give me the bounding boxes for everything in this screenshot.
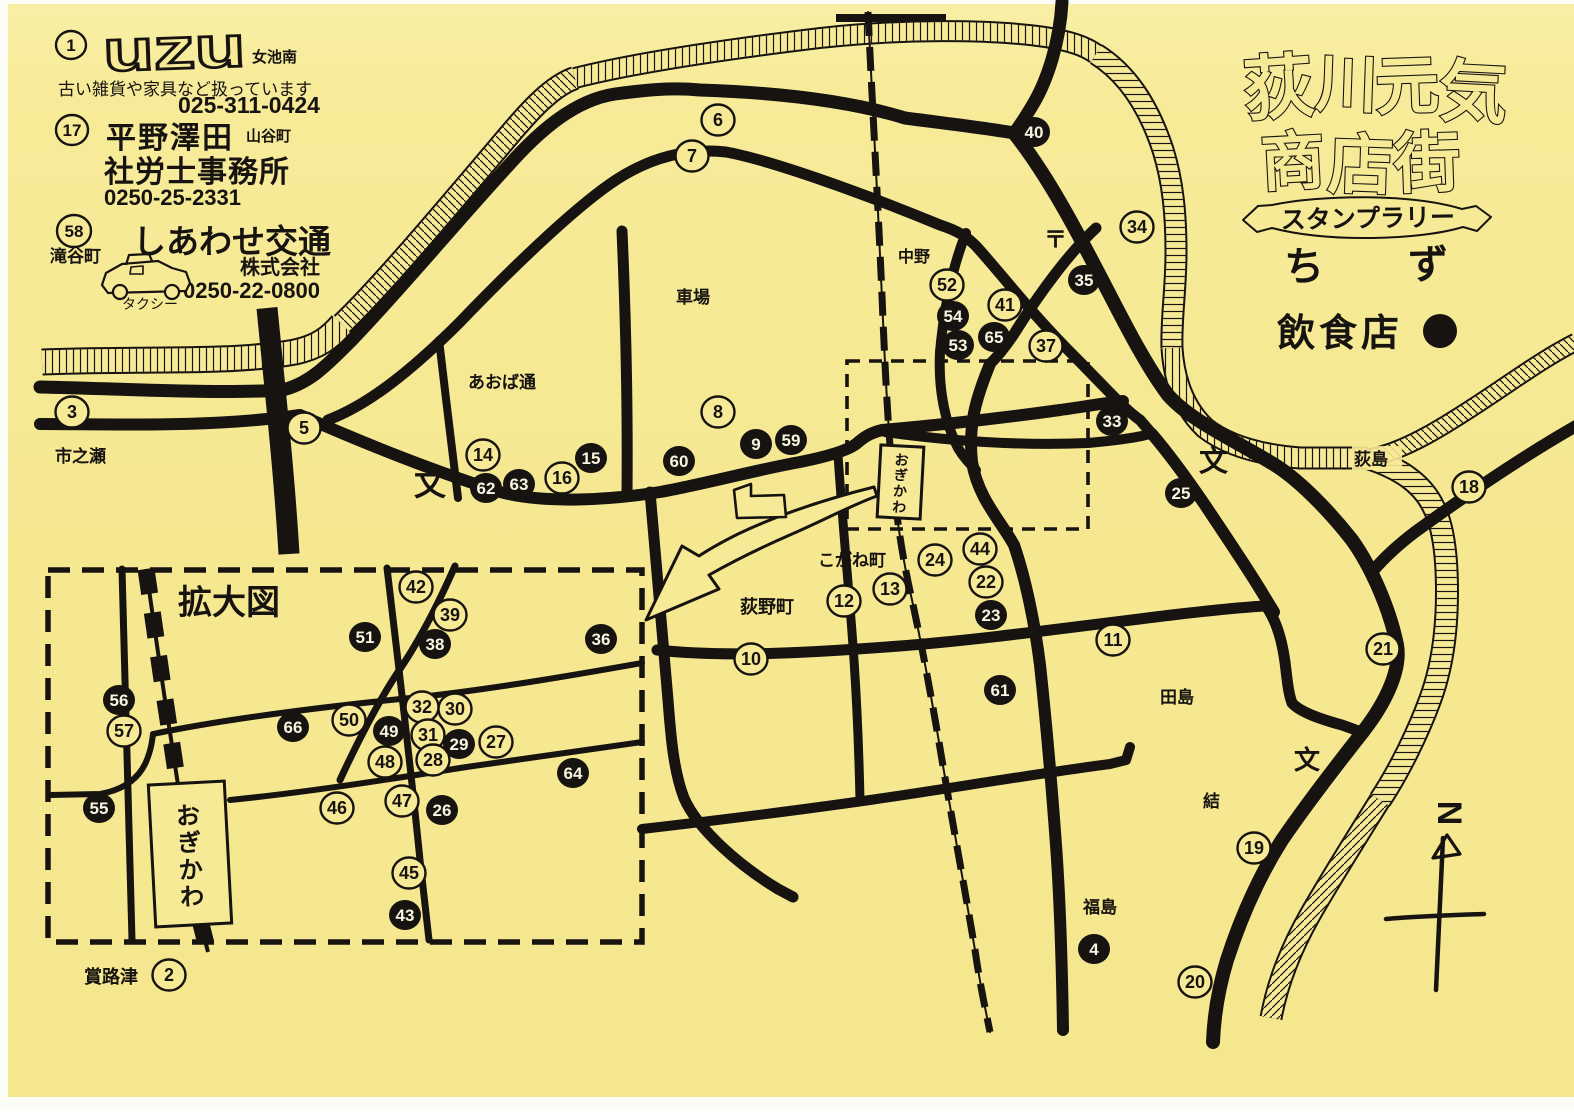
svg-text:12: 12	[834, 591, 854, 611]
svg-text:35: 35	[1075, 271, 1094, 290]
svg-text:5: 5	[299, 418, 309, 438]
svg-text:52: 52	[937, 275, 957, 295]
svg-text:55: 55	[90, 799, 109, 818]
svg-text:uzu: uzu	[102, 14, 246, 84]
svg-text:商: 商	[1259, 124, 1327, 199]
svg-text:39: 39	[440, 605, 460, 625]
svg-text:14: 14	[473, 445, 493, 465]
svg-text:か: か	[178, 856, 203, 884]
svg-text:42: 42	[406, 577, 426, 597]
svg-text:N: N	[1430, 801, 1468, 826]
svg-text:58: 58	[65, 222, 84, 241]
svg-text:文: 文	[1199, 444, 1229, 478]
svg-text:川: 川	[1315, 50, 1379, 121]
svg-text:17: 17	[63, 121, 82, 140]
svg-text:拡大図: 拡大図	[178, 584, 280, 622]
svg-text:ち: ち	[1284, 245, 1324, 289]
svg-text:気: 気	[1437, 53, 1509, 132]
svg-text:57: 57	[114, 721, 134, 741]
svg-text:飲食店: 飲食店	[1277, 313, 1403, 355]
svg-text:お: お	[175, 802, 200, 830]
svg-text:23: 23	[982, 606, 1001, 625]
svg-text:30: 30	[445, 699, 465, 719]
svg-text:中野: 中野	[898, 247, 930, 266]
svg-text:3: 3	[67, 402, 77, 422]
svg-text:こがね町: こがね町	[818, 550, 886, 570]
svg-text:62: 62	[477, 479, 496, 498]
svg-text:田島: 田島	[1160, 687, 1194, 707]
svg-text:あおば通: あおば通	[468, 373, 536, 392]
svg-text:結: 結	[1203, 791, 1220, 811]
svg-text:0250-25-2331: 0250-25-2331	[104, 185, 241, 210]
svg-text:2: 2	[164, 965, 174, 985]
svg-text:株式会社: 株式会社	[240, 255, 320, 279]
svg-text:元: 元	[1374, 49, 1440, 123]
svg-text:山谷町: 山谷町	[246, 128, 291, 145]
svg-text:荻島: 荻島	[1354, 449, 1388, 469]
svg-text:4: 4	[1089, 940, 1099, 959]
svg-text:19: 19	[1244, 838, 1264, 858]
svg-text:33: 33	[1103, 412, 1122, 431]
svg-text:文: 文	[1294, 745, 1321, 775]
svg-text:63: 63	[510, 475, 529, 494]
svg-text:26: 26	[433, 801, 452, 820]
svg-text:しあわせ交通: しあわせ交通	[133, 223, 331, 260]
svg-text:29: 29	[450, 735, 469, 754]
svg-text:福島: 福島	[1082, 897, 1117, 917]
svg-text:54: 54	[944, 307, 963, 326]
svg-text:22: 22	[976, 572, 996, 592]
svg-text:32: 32	[412, 697, 432, 717]
svg-text:65: 65	[985, 328, 1004, 347]
svg-text:市之瀬: 市之瀬	[55, 446, 106, 466]
svg-text:か: か	[893, 483, 908, 500]
svg-text:ず: ず	[1408, 243, 1448, 287]
svg-text:わ: わ	[180, 883, 205, 911]
svg-text:44: 44	[970, 539, 990, 559]
svg-text:60: 60	[670, 452, 689, 471]
svg-text:43: 43	[396, 906, 415, 925]
svg-text:025-311-0424: 025-311-0424	[178, 92, 320, 118]
svg-text:28: 28	[423, 750, 443, 770]
svg-text:46: 46	[327, 798, 347, 818]
svg-text:賞路津: 賞路津	[84, 966, 138, 987]
svg-text:タクシー: タクシー	[122, 296, 178, 312]
svg-text:16: 16	[552, 468, 572, 488]
svg-text:21: 21	[1373, 639, 1393, 659]
svg-text:10: 10	[741, 649, 761, 669]
svg-text:女池南: 女池南	[252, 48, 297, 66]
svg-text:15: 15	[582, 449, 601, 468]
svg-text:13: 13	[880, 579, 900, 599]
svg-text:18: 18	[1459, 477, 1479, 497]
svg-text:わ: わ	[892, 499, 907, 516]
svg-text:荻: 荻	[1241, 47, 1316, 130]
svg-text:56: 56	[110, 691, 129, 710]
svg-text:50: 50	[339, 710, 359, 730]
svg-text:社労士事務所: 社労士事務所	[104, 155, 290, 189]
svg-text:49: 49	[380, 722, 399, 741]
svg-text:36: 36	[592, 630, 611, 649]
svg-text:34: 34	[1127, 217, 1147, 237]
svg-text:47: 47	[392, 791, 412, 811]
svg-text:24: 24	[925, 550, 945, 570]
svg-text:51: 51	[356, 628, 375, 647]
svg-text:11: 11	[1103, 630, 1122, 650]
svg-text:〒: 〒	[1044, 226, 1067, 252]
svg-text:ぎ: ぎ	[177, 828, 202, 857]
svg-text:45: 45	[399, 863, 419, 883]
svg-text:6: 6	[713, 110, 723, 130]
svg-text:37: 37	[1036, 336, 1056, 356]
svg-text:0250-22-0800: 0250-22-0800	[183, 278, 320, 303]
svg-text:9: 9	[751, 435, 760, 454]
svg-text:41: 41	[995, 295, 1015, 315]
svg-text:59: 59	[782, 431, 801, 450]
svg-text:48: 48	[375, 752, 395, 772]
svg-text:31: 31	[418, 725, 438, 745]
svg-text:25: 25	[1172, 484, 1191, 503]
svg-text:ぎ: ぎ	[893, 467, 908, 484]
svg-text:滝谷町: 滝谷町	[50, 246, 101, 266]
svg-text:61: 61	[991, 681, 1010, 700]
svg-text:40: 40	[1025, 123, 1044, 142]
svg-text:27: 27	[486, 732, 506, 752]
svg-text:文: 文	[414, 466, 446, 502]
svg-text:20: 20	[1185, 972, 1205, 992]
svg-text:車場: 車場	[676, 287, 710, 307]
svg-text:平野澤田: 平野澤田	[106, 122, 234, 155]
svg-text:街: 街	[1392, 125, 1462, 201]
svg-text:53: 53	[949, 336, 968, 355]
svg-text:38: 38	[426, 635, 445, 654]
svg-text:66: 66	[284, 718, 303, 737]
svg-text:8: 8	[713, 402, 723, 422]
svg-text:1: 1	[66, 36, 75, 55]
svg-text:スタンプラリー: スタンプラリー	[1280, 203, 1455, 234]
svg-text:荻野町: 荻野町	[740, 596, 794, 617]
svg-text:7: 7	[687, 146, 697, 166]
svg-text:店: 店	[1327, 127, 1396, 203]
svg-text:64: 64	[564, 764, 583, 783]
